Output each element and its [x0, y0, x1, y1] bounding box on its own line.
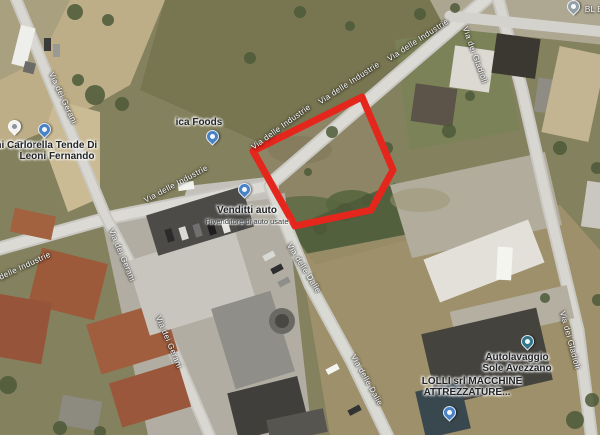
truck [496, 247, 513, 281]
poi-label[interactable]: ni Carlo [0, 140, 33, 151]
poi-label[interactable]: Venditti auto [217, 205, 277, 216]
poi-label[interactable]: ica Foods [176, 117, 223, 128]
poi-label[interactable]: Leoni Fernando [20, 151, 95, 162]
satellite-map[interactable]: Via delle Industrie Via delle Industrie … [0, 0, 600, 435]
poi-label[interactable]: Sole Avezzano [482, 363, 551, 374]
poi-label[interactable]: Autolavaggio [485, 352, 548, 363]
poi-label[interactable]: ATTREZZATURE... [424, 387, 511, 398]
poi-sublabel: Rivenditore di auto usate [206, 217, 289, 226]
poi-label[interactable]: BL Edil [585, 4, 600, 14]
poi-label[interactable]: LOLLI srl MACCHINE [422, 376, 523, 387]
